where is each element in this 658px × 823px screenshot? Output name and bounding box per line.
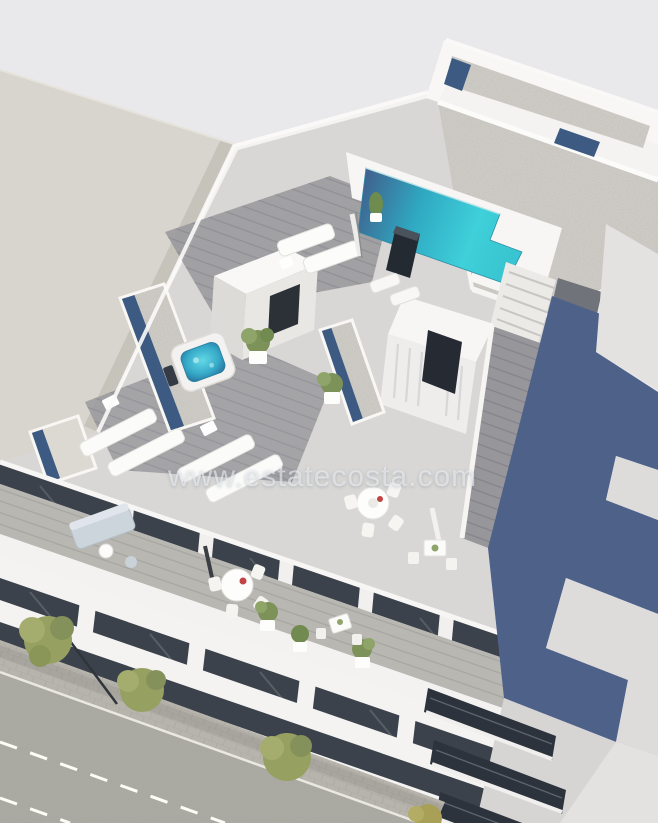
potted-plant: [291, 625, 309, 652]
architectural-render: www.estatecosta.com: [0, 0, 658, 823]
potted-cypress: [369, 192, 383, 216]
watermark-text: www.estatecosta.com: [168, 460, 508, 495]
render-canvas: [0, 0, 658, 823]
